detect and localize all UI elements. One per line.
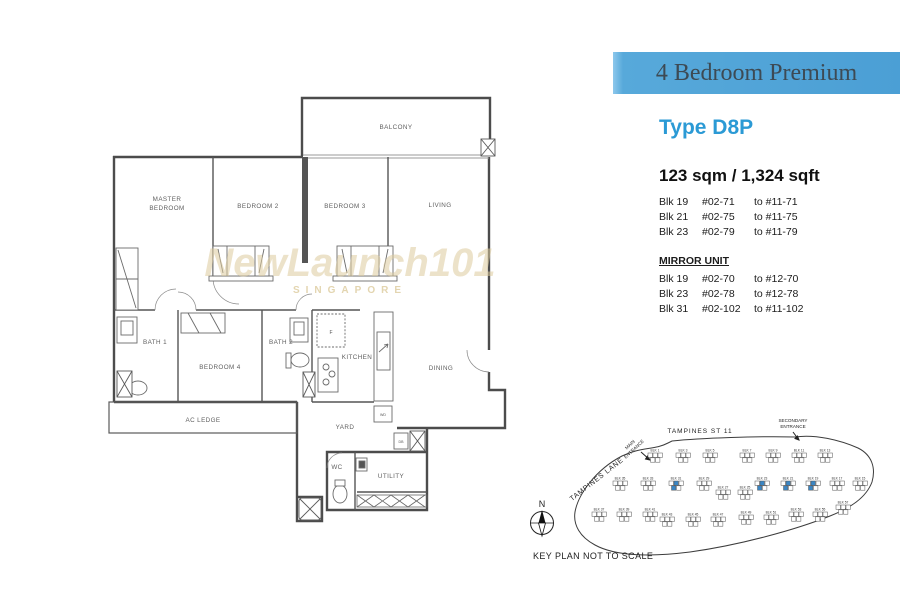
mirror-unit-heading: MIRROR UNIT xyxy=(659,255,729,267)
shaft-x-icon xyxy=(299,498,321,520)
room-label-master-1: MASTER xyxy=(153,196,182,203)
room-label-bath1: BATH 1 xyxy=(143,339,167,346)
unit-to: to #12-70 xyxy=(754,273,798,285)
unit-to: to #11-71 xyxy=(754,196,798,208)
unit-blk: Blk 19 xyxy=(659,196,702,208)
svg-text:BLK 7: BLK 7 xyxy=(743,448,752,452)
svg-text:BLK 33: BLK 33 xyxy=(643,476,654,480)
svg-text:BLK 45: BLK 45 xyxy=(688,512,699,516)
floorplan-page: MASTER BEDROOM BEDROOM 2 BEDROOM 3 LIVIN… xyxy=(0,0,900,600)
shaft-x-icon xyxy=(303,372,315,397)
compass-icon: N xyxy=(530,499,554,536)
keyplan-map: BLK 1BLK 3BLK 5BLK 7BLK 9BLK 11BLK 13BLK… xyxy=(520,405,900,570)
compass-n-label: N xyxy=(539,499,546,509)
unit-from: #02-71 xyxy=(702,196,754,208)
unit-row: Blk 23 #02-78 to #12-78 xyxy=(659,286,803,301)
bed-icon xyxy=(209,246,273,281)
shaft-x-icon xyxy=(117,371,132,397)
svg-text:BLK 31: BLK 31 xyxy=(671,476,682,480)
secondary-entrance-line2: ENTRANCE xyxy=(780,424,805,429)
room-label-master-2: BEDROOM xyxy=(149,205,184,212)
sink-icon xyxy=(117,317,137,343)
unit-to: to #11-102 xyxy=(754,303,803,315)
type-label: Type D8P xyxy=(659,116,753,140)
room-label-kitchen: KITCHEN xyxy=(342,354,372,361)
utility-hatch xyxy=(357,495,427,507)
unit-row: Blk 19 #02-70 to #12-70 xyxy=(659,271,803,286)
wardrobe-icon xyxy=(181,313,225,333)
unit-row: Blk 21 #02-75 to #11-75 xyxy=(659,209,798,224)
svg-text:BLK 29: BLK 29 xyxy=(699,476,710,480)
secondary-entrance-label: SECONDARY ENTRANCE xyxy=(778,418,807,429)
unit-row: Blk 23 #02-79 to #11-79 xyxy=(659,224,798,239)
svg-text:BLK 47: BLK 47 xyxy=(713,512,724,516)
shaft-x-icon xyxy=(481,139,495,156)
svg-text:BLK 57: BLK 57 xyxy=(838,500,849,504)
unit-type-banner-title: 4 Bedroom Premium xyxy=(656,60,857,87)
room-label-utility: UTILITY xyxy=(378,473,405,480)
mirror-unit-list: Blk 19 #02-70 to #12-70 Blk 23 #02-78 to… xyxy=(659,271,803,316)
room-label-yard: YARD xyxy=(336,424,355,431)
unit-to: to #12-78 xyxy=(754,288,798,300)
room-label-living: LIVING xyxy=(428,202,451,209)
svg-text:BLK 1: BLK 1 xyxy=(651,448,660,452)
svg-text:BLK 21: BLK 21 xyxy=(783,476,794,480)
room-label-dining: DINING xyxy=(429,365,453,372)
room-label-ac-ledge: AC LEDGE xyxy=(185,417,220,424)
kitchen-cabinet-icon xyxy=(374,312,393,401)
keyplan-note: KEY PLAN NOT TO SCALE xyxy=(533,551,653,561)
unit-from: #02-78 xyxy=(702,288,754,300)
bed-icon xyxy=(333,246,397,281)
secondary-entrance-line1: SECONDARY xyxy=(778,418,807,423)
svg-text:BLK 15: BLK 15 xyxy=(855,476,866,480)
svg-text:BLK 17: BLK 17 xyxy=(832,476,843,480)
db-label: DB xyxy=(399,440,405,444)
corridor-wall xyxy=(302,157,308,263)
room-label-bedroom4: BEDROOM 4 xyxy=(199,364,240,371)
outer-walls xyxy=(113,98,505,521)
unit-blk: Blk 23 xyxy=(659,226,702,238)
svg-text:BLK 23: BLK 23 xyxy=(757,476,768,480)
unit-from: #02-79 xyxy=(702,226,754,238)
unit-blk: Blk 21 xyxy=(659,211,702,223)
unit-from: #02-75 xyxy=(702,211,754,223)
shaft-x-icon xyxy=(410,431,425,451)
room-label-wc: WC xyxy=(331,464,342,471)
unit-from: #02-102 xyxy=(702,303,754,315)
street-label: TAMPINES ST 11 xyxy=(667,428,732,435)
svg-text:BLK 49: BLK 49 xyxy=(741,510,752,514)
fridge-label: F xyxy=(329,330,332,336)
room-label-bath2: BATH 2 xyxy=(269,339,293,346)
svg-text:BLK 53: BLK 53 xyxy=(791,507,802,511)
main-entrance-label: MAIN ENTRANCE xyxy=(619,434,645,459)
sink-icon xyxy=(356,458,367,471)
svg-text:BLK 5: BLK 5 xyxy=(706,448,715,452)
toilet-icon xyxy=(333,480,347,503)
svg-text:BLK 11: BLK 11 xyxy=(794,448,805,452)
svg-text:BLK 43: BLK 43 xyxy=(662,512,673,516)
svg-text:BLK 9: BLK 9 xyxy=(769,448,778,452)
svg-text:BLK 19: BLK 19 xyxy=(808,476,819,480)
room-label-bedroom2: BEDROOM 2 xyxy=(237,203,278,210)
wardrobe-icon xyxy=(116,248,138,310)
unit-blk: Blk 19 xyxy=(659,273,702,285)
svg-text:BLK 41: BLK 41 xyxy=(645,507,656,511)
washer-label: WD xyxy=(380,413,386,417)
svg-text:BLK 3: BLK 3 xyxy=(679,448,688,452)
svg-text:BLK 55: BLK 55 xyxy=(815,507,826,511)
balcony-railing xyxy=(303,155,489,158)
svg-text:BLK 39: BLK 39 xyxy=(619,507,630,511)
stove-icon xyxy=(318,358,338,392)
svg-text:BLK 13: BLK 13 xyxy=(820,448,831,452)
unit-from: #02-70 xyxy=(702,273,754,285)
unit-type-banner: 4 Bedroom Premium xyxy=(613,52,900,94)
room-label-balcony: BALCONY xyxy=(380,124,413,131)
unit-list: Blk 19 #02-71 to #11-71 Blk 21 #02-75 to… xyxy=(659,194,798,239)
svg-text:BLK 51: BLK 51 xyxy=(766,510,777,514)
room-label-bedroom3: BEDROOM 3 xyxy=(324,203,365,210)
svg-text:BLK 35: BLK 35 xyxy=(615,476,626,480)
floorplan-drawing: MASTER BEDROOM BEDROOM 2 BEDROOM 3 LIVIN… xyxy=(0,0,560,600)
toilet-icon xyxy=(286,353,309,368)
unit-blk: Blk 23 xyxy=(659,288,702,300)
unit-to: to #11-79 xyxy=(754,226,798,238)
svg-text:BLK 25: BLK 25 xyxy=(740,485,751,489)
unit-row: Blk 31 #02-102 to #11-102 xyxy=(659,301,803,316)
svg-text:BLK 37: BLK 37 xyxy=(594,507,605,511)
svg-text:BLK 27: BLK 27 xyxy=(718,485,729,489)
keyplan-blocks: BLK 1BLK 3BLK 5BLK 7BLK 9BLK 11BLK 13BLK… xyxy=(592,448,867,526)
unit-to: to #11-75 xyxy=(754,211,798,223)
area-label: 123 sqm / 1,324 sqft xyxy=(659,166,820,186)
unit-blk: Blk 31 xyxy=(659,303,702,315)
unit-row: Blk 19 #02-71 to #11-71 xyxy=(659,194,798,209)
